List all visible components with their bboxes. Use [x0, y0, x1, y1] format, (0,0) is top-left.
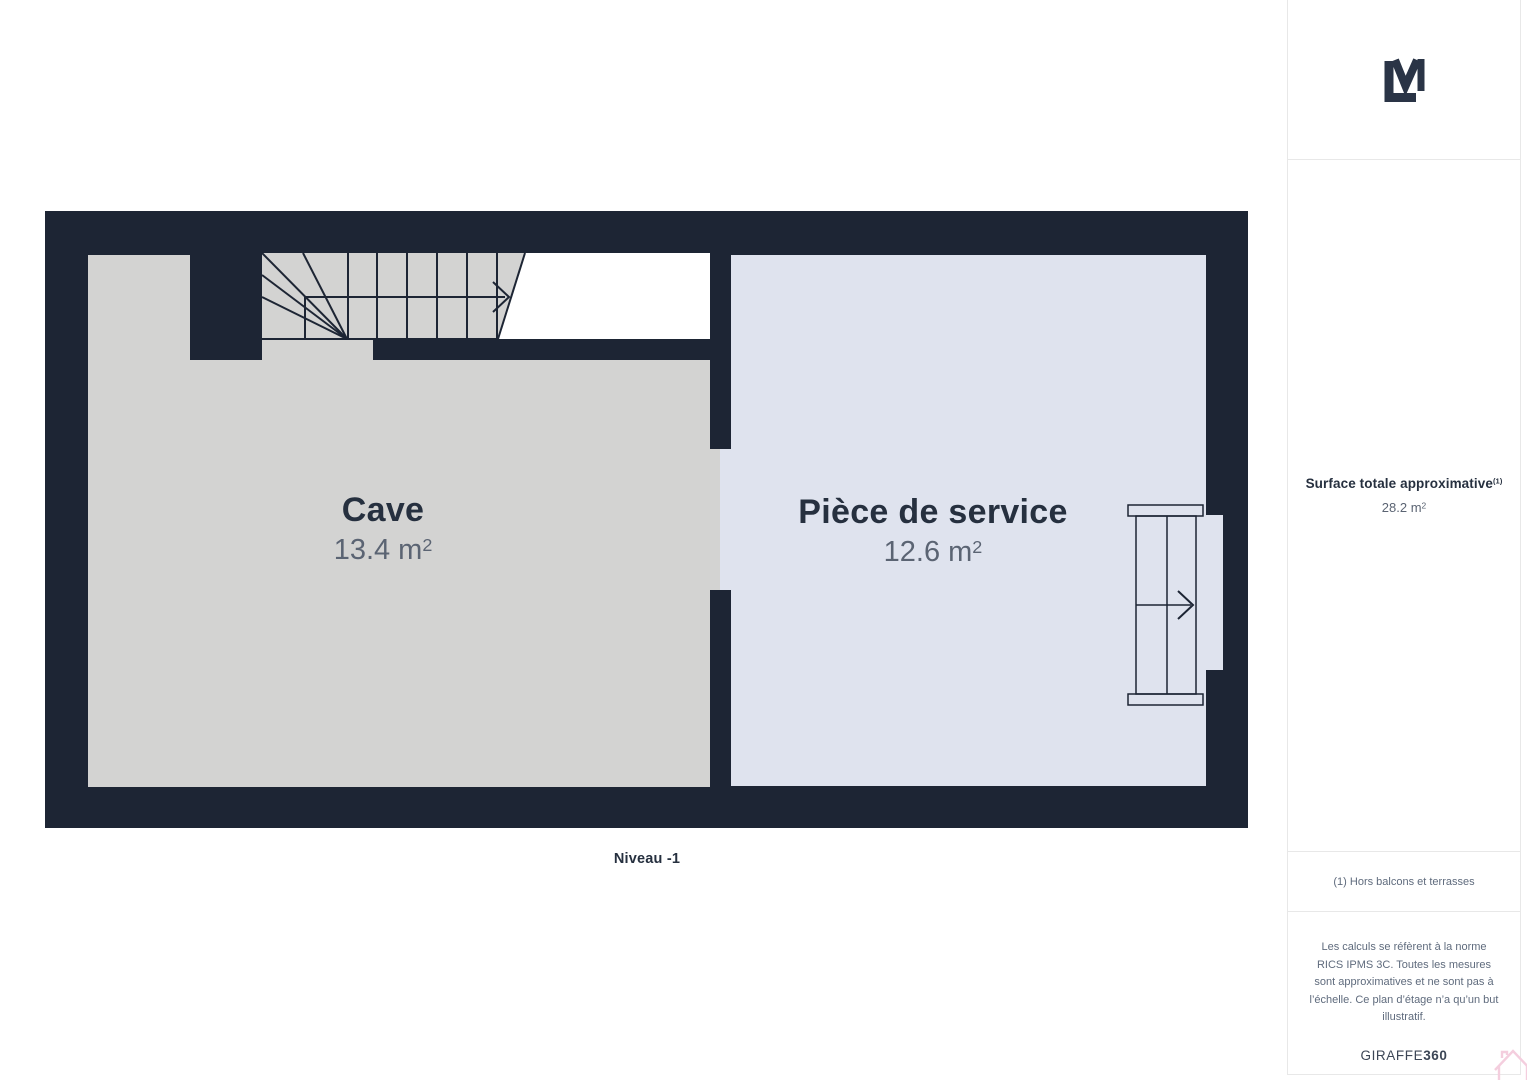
- surface-title: Surface totale approximative(1): [1288, 476, 1520, 491]
- room-name: Pièce de service: [798, 495, 1067, 529]
- footnote-section: (1) Hors balcons et terrasses: [1288, 852, 1520, 912]
- surface-value: 28.2 m2: [1288, 500, 1520, 515]
- disclaimer-section: Les calculs se réfèrent à la norme RICS …: [1288, 912, 1520, 1063]
- staircase-upper-void: [498, 253, 710, 339]
- disclaimer-text: Les calculs se réfèrent à la norme RICS …: [1307, 939, 1501, 1027]
- footnote-text: (1) Hors balcons et terrasses: [1333, 876, 1474, 888]
- brand: GIRAFFE360: [1307, 1048, 1501, 1063]
- lm-monogram-logo: [1382, 57, 1426, 103]
- logo-section: [1288, 0, 1520, 160]
- house-outline-icon: [1492, 1044, 1527, 1080]
- surface-section: Surface totale approximative(1) 28.2 m2: [1288, 160, 1520, 852]
- page: Cave 13.4m2 Pièce de service 12.6m2 Nive…: [0, 0, 1527, 1080]
- room-label-cave: Cave 13.4m2: [334, 493, 433, 565]
- wall-opening: [1206, 515, 1223, 670]
- room-area: 13.4m2: [334, 536, 433, 565]
- info-sidebar: Surface totale approximative(1) 28.2 m2 …: [1287, 0, 1521, 1075]
- level-label: Niveau -1: [614, 851, 680, 867]
- room-label-service: Pièce de service 12.6m2: [798, 495, 1067, 567]
- footnote-marker: (1): [1493, 477, 1502, 486]
- room-area: 12.6m2: [798, 538, 1067, 567]
- room-name: Cave: [334, 493, 433, 527]
